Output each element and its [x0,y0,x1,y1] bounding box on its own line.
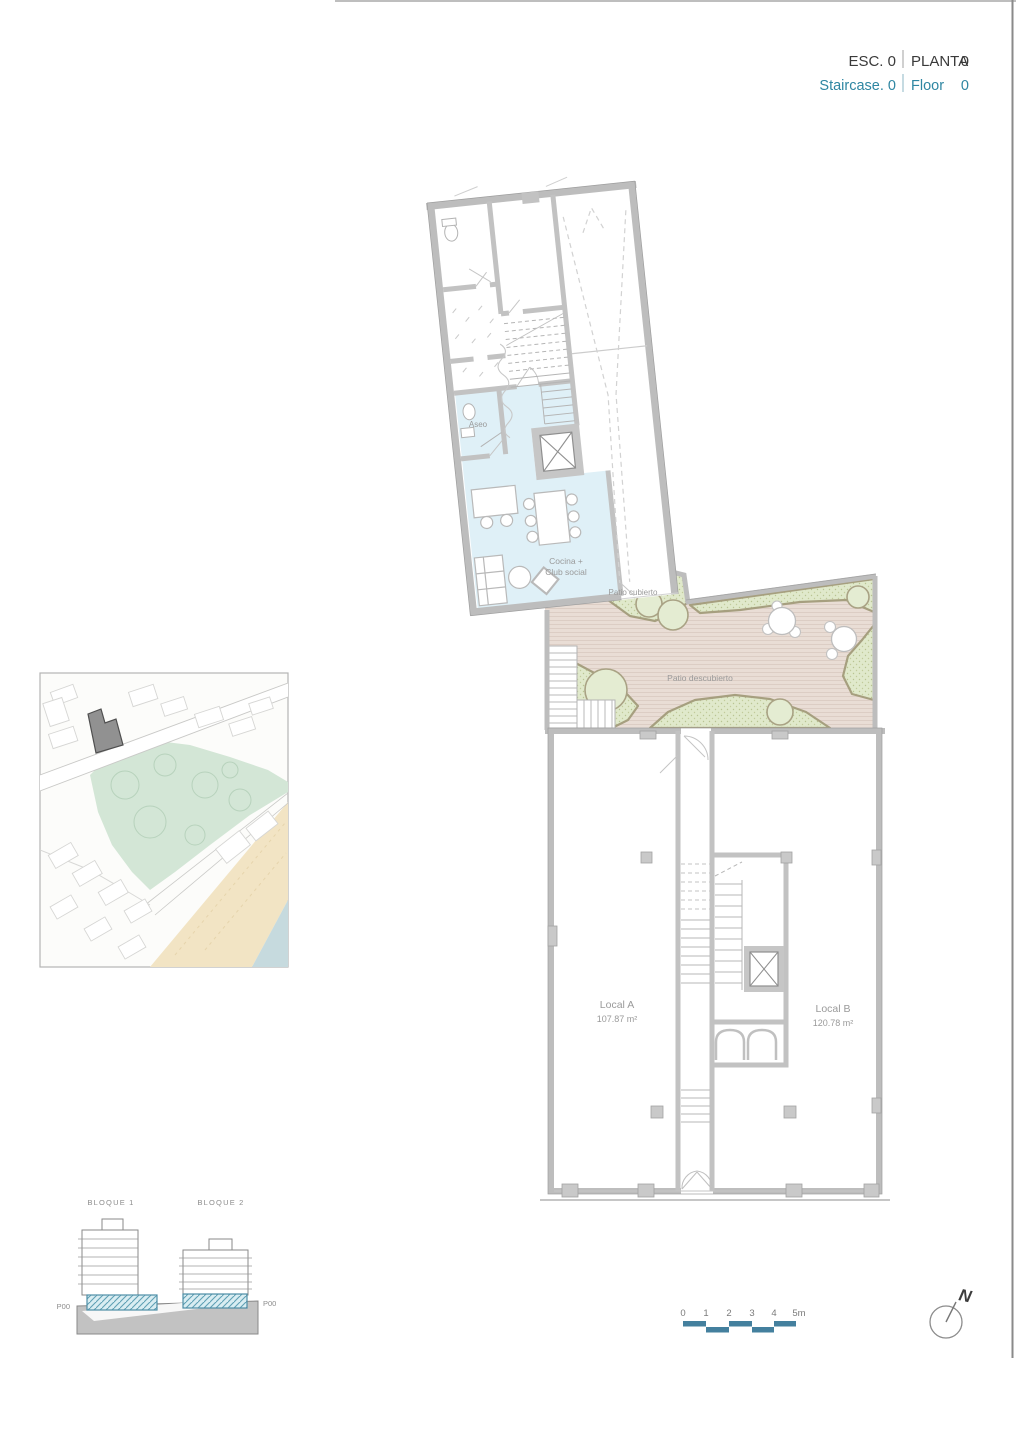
section-tower-2 [179,1239,252,1295]
label-local-a: Local A [600,999,634,1011]
header-planta-value: 0 [961,53,969,70]
scale-tick-3: 3 [749,1308,754,1319]
header-floor: Floor [911,78,944,94]
label-local-b-area: 120.78 m² [813,1018,854,1028]
scale-tick-2: 2 [726,1308,731,1319]
header-planta: PLANTA [911,53,968,70]
compass-needle [946,1302,956,1322]
label-aseo: Aseo [469,420,488,429]
upper-building [425,170,679,616]
label-local-b: Local B [815,1003,850,1015]
compass-north-label: N [957,1285,974,1306]
section-elevation: BLOQUE 1 BLOQUE 2 P00 [57,1198,277,1334]
core-elevator [744,946,784,992]
label-cocina-2: Club social [545,567,587,577]
lower-building [540,728,890,1200]
header-esc: ESC. 0 [848,53,896,70]
section-slab-2 [183,1294,247,1308]
scale-tick-5m: 5m [792,1308,805,1319]
scale-tick-0: 0 [680,1308,685,1319]
section-slab-1 [87,1295,157,1310]
label-local-a-area: 107.87 m² [597,1014,638,1024]
section-tower-1 [78,1219,138,1295]
header-staircase: Staircase. 0 [819,78,896,94]
label-patio-descubierto: Patio descubierto [667,673,733,683]
label-patio-cubierto: Patio cubierto [609,588,658,597]
header: ESC. 0 PLANTA 0 Staircase. 0 Floor 0 [819,50,969,94]
floor-plan-drawing: ESC. 0 PLANTA 0 Staircase. 0 Floor 0 [0,0,1016,1440]
scale-bar: 0 1 2 3 4 5m [680,1308,805,1333]
section-p00-right: P00 [263,1299,276,1308]
header-floor-value: 0 [961,78,969,94]
scale-bar-segments [683,1321,796,1333]
section-p00-left: P00 [57,1302,70,1311]
north-compass: N [930,1285,974,1338]
upper-elevator [531,423,584,480]
label-cocina-1: Cocina + [549,556,583,566]
site-map-inset [40,673,288,967]
section-bloque2-label: BLOQUE 2 [197,1198,244,1207]
section-bloque1-label: BLOQUE 1 [87,1198,134,1207]
scale-tick-1: 1 [703,1308,708,1319]
plan-sheet: ESC. 0 PLANTA 0 Staircase. 0 Floor 0 [0,0,1016,1440]
scale-tick-4: 4 [771,1308,776,1319]
